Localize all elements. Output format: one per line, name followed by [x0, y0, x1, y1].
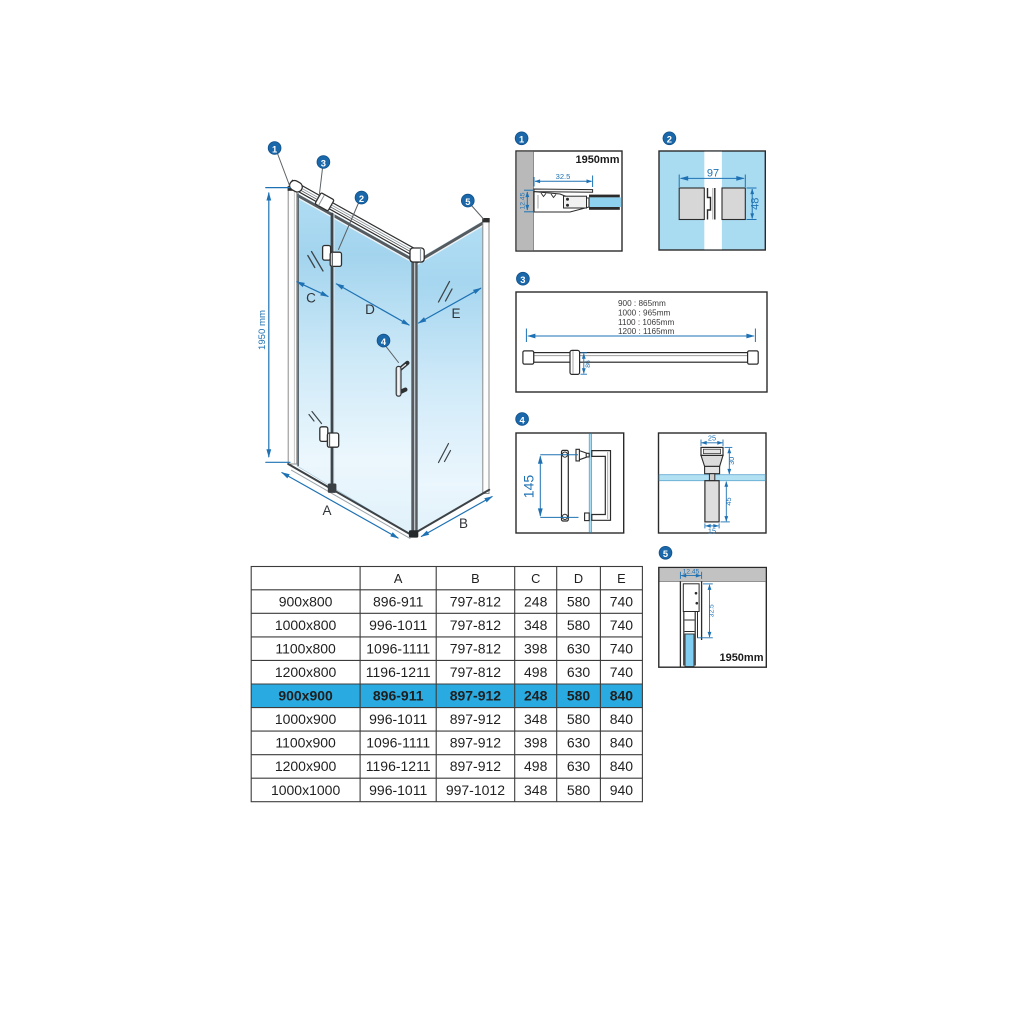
svg-text:797-812: 797-812 — [450, 641, 502, 657]
svg-text:1000x1000: 1000x1000 — [271, 782, 341, 798]
svg-text:248: 248 — [524, 593, 548, 609]
svg-text:D: D — [574, 571, 583, 586]
svg-text:740: 740 — [610, 664, 634, 680]
svg-text:15: 15 — [708, 527, 716, 536]
svg-text:797-812: 797-812 — [450, 593, 502, 609]
svg-text:2: 2 — [359, 193, 364, 204]
svg-text:580: 580 — [567, 711, 591, 727]
svg-text:1096-1111: 1096-1111 — [366, 735, 430, 751]
svg-text:32.5: 32.5 — [556, 172, 571, 181]
svg-text:896-911: 896-911 — [373, 688, 424, 704]
svg-text:A: A — [394, 571, 403, 586]
svg-text:97: 97 — [707, 168, 719, 180]
svg-text:740: 740 — [610, 593, 634, 609]
svg-text:840: 840 — [610, 688, 634, 704]
svg-text:B: B — [459, 516, 468, 531]
svg-text:1196-1211: 1196-1211 — [366, 664, 431, 680]
svg-text:1950mm: 1950mm — [719, 652, 763, 664]
svg-text:630: 630 — [567, 664, 591, 680]
svg-text:996-1011: 996-1011 — [369, 711, 427, 727]
svg-text:3: 3 — [520, 274, 525, 285]
svg-text:A: A — [322, 503, 331, 518]
svg-text:896-911: 896-911 — [373, 593, 424, 609]
svg-text:797-812: 797-812 — [450, 617, 502, 633]
svg-text:1950 mm: 1950 mm — [257, 310, 268, 350]
svg-text:840: 840 — [610, 758, 634, 774]
svg-text:5: 5 — [465, 196, 470, 207]
svg-text:897-912: 897-912 — [450, 758, 502, 774]
svg-text:740: 740 — [610, 617, 634, 633]
svg-text:3: 3 — [321, 157, 326, 168]
svg-text:996-1011: 996-1011 — [369, 617, 427, 633]
svg-text:1200x900: 1200x900 — [275, 758, 337, 774]
svg-text:25: 25 — [708, 434, 716, 443]
svg-text:740: 740 — [610, 641, 634, 657]
svg-text:1: 1 — [272, 143, 277, 154]
svg-text:4: 4 — [519, 414, 525, 425]
svg-text:348: 348 — [524, 782, 548, 798]
svg-text:B: B — [471, 571, 480, 586]
svg-text:997-1012: 997-1012 — [446, 782, 505, 798]
svg-text:12.45: 12.45 — [520, 192, 527, 209]
svg-text:C: C — [306, 291, 316, 306]
svg-text:E: E — [617, 571, 626, 586]
svg-text:1000x800: 1000x800 — [275, 617, 337, 633]
svg-text:145: 145 — [521, 475, 537, 499]
svg-text:348: 348 — [524, 711, 548, 727]
svg-text:1100x800: 1100x800 — [275, 641, 336, 657]
svg-text:498: 498 — [524, 758, 548, 774]
svg-text:580: 580 — [567, 617, 591, 633]
svg-text:630: 630 — [567, 641, 591, 657]
svg-text:4: 4 — [381, 336, 387, 347]
svg-text:86: 86 — [585, 360, 592, 368]
svg-text:48: 48 — [750, 198, 762, 210]
svg-text:398: 398 — [524, 641, 548, 657]
svg-text:840: 840 — [610, 735, 634, 751]
svg-text:C: C — [531, 571, 540, 586]
svg-text:580: 580 — [567, 593, 591, 609]
svg-text:1: 1 — [519, 134, 524, 145]
svg-text:580: 580 — [567, 782, 591, 798]
svg-text:840: 840 — [610, 711, 634, 727]
svg-text:498: 498 — [524, 664, 548, 680]
svg-text:1100x900: 1100x900 — [275, 735, 336, 751]
svg-text:900x900: 900x900 — [278, 688, 333, 704]
svg-text:1200 : 1165mm: 1200 : 1165mm — [618, 327, 674, 336]
svg-text:12.45: 12.45 — [683, 569, 700, 576]
svg-text:996-1011: 996-1011 — [369, 782, 427, 798]
svg-text:630: 630 — [567, 735, 591, 751]
svg-text:45: 45 — [724, 497, 733, 505]
svg-text:897-912: 897-912 — [450, 735, 502, 751]
svg-text:1000x900: 1000x900 — [275, 711, 337, 727]
svg-text:580: 580 — [567, 688, 591, 704]
svg-text:1950mm: 1950mm — [575, 154, 619, 166]
svg-text:348: 348 — [524, 617, 548, 633]
svg-text:E: E — [451, 306, 460, 321]
svg-text:1096-1111: 1096-1111 — [366, 641, 430, 657]
svg-text:398: 398 — [524, 735, 548, 751]
svg-text:900 : 865mm: 900 : 865mm — [618, 299, 666, 308]
svg-text:2: 2 — [667, 134, 672, 145]
svg-text:1200x800: 1200x800 — [275, 664, 337, 680]
svg-text:1100 : 1065mm: 1100 : 1065mm — [618, 318, 674, 327]
svg-text:1196-1211: 1196-1211 — [366, 758, 431, 774]
svg-text:630: 630 — [567, 758, 591, 774]
svg-text:897-912: 897-912 — [450, 688, 502, 704]
svg-text:897-912: 897-912 — [450, 711, 502, 727]
svg-text:1000 : 965mm: 1000 : 965mm — [618, 308, 671, 317]
svg-text:32.5: 32.5 — [709, 604, 716, 617]
svg-text:797-812: 797-812 — [450, 664, 502, 680]
svg-text:248: 248 — [524, 688, 548, 704]
svg-text:900x800: 900x800 — [279, 593, 333, 609]
svg-text:940: 940 — [610, 782, 634, 798]
svg-text:D: D — [365, 302, 375, 317]
svg-text:30: 30 — [727, 457, 736, 465]
svg-text:5: 5 — [663, 548, 668, 559]
